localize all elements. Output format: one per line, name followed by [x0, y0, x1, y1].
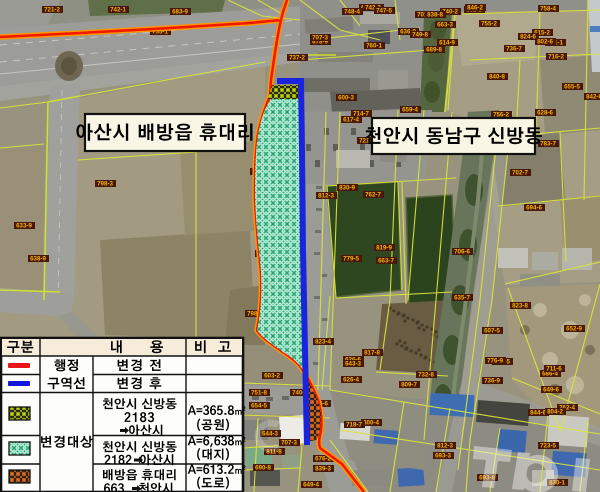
svg-text:707-3: 707-3 [281, 440, 297, 447]
svg-text:716-2: 716-2 [548, 54, 564, 61]
svg-text:694-6: 694-6 [526, 205, 542, 212]
svg-text:633-9: 633-9 [16, 223, 32, 230]
svg-text:758-4: 758-4 [540, 6, 556, 13]
svg-text:817-8: 817-8 [364, 350, 380, 357]
svg-text:655-5: 655-5 [564, 84, 580, 91]
svg-text:800-4: 800-4 [363, 420, 379, 427]
svg-text:804-2: 804-2 [547, 409, 563, 416]
svg-text:644-3: 644-3 [262, 431, 278, 438]
svg-text:659-4: 659-4 [402, 107, 418, 114]
svg-text:812-3: 812-3 [437, 443, 453, 450]
svg-text:663-3: 663-3 [437, 22, 453, 29]
svg-text:755-2: 755-2 [481, 21, 497, 28]
svg-text:809-7: 809-7 [401, 382, 417, 389]
svg-text:783-7: 783-7 [540, 141, 556, 148]
svg-text:603-2: 603-2 [264, 373, 280, 380]
svg-text:824-6: 824-6 [520, 34, 536, 41]
svg-text:842-6: 842-6 [586, 94, 600, 101]
svg-text:748-4: 748-4 [344, 9, 360, 16]
svg-text:683-9: 683-9 [172, 9, 188, 16]
svg-text:635-7: 635-7 [454, 295, 470, 302]
svg-text:649-4: 649-4 [303, 482, 319, 489]
svg-text:823-8: 823-8 [512, 303, 528, 310]
svg-text:600-3: 600-3 [338, 95, 354, 102]
svg-text:840-8: 840-8 [489, 74, 505, 81]
svg-text:802-6: 802-6 [537, 39, 553, 46]
svg-text:638-9: 638-9 [30, 256, 46, 263]
svg-text:819-9: 819-9 [376, 245, 392, 252]
svg-text:812-3: 812-3 [318, 193, 334, 200]
svg-text:706-6: 706-6 [454, 249, 470, 256]
svg-text:652-9: 652-9 [566, 326, 582, 333]
svg-text:723-5: 723-5 [540, 443, 556, 450]
svg-text:747-5: 747-5 [376, 8, 392, 15]
svg-text:654-5: 654-5 [251, 403, 267, 410]
svg-text:844-6: 844-6 [530, 410, 546, 417]
svg-text:628-6: 628-6 [537, 110, 553, 117]
svg-text:839-3: 839-3 [315, 466, 331, 473]
svg-text:614-9: 614-9 [439, 40, 455, 47]
svg-text:736-9: 736-9 [484, 378, 500, 385]
svg-text:776-9: 776-9 [487, 358, 503, 365]
svg-text:617-4: 617-4 [343, 117, 359, 124]
svg-text:711-6: 711-6 [546, 366, 562, 373]
svg-text:779-5: 779-5 [343, 256, 359, 263]
svg-text:830-9: 830-9 [339, 185, 355, 192]
svg-text:707-3: 707-3 [312, 35, 328, 42]
svg-text:798-3: 798-3 [97, 181, 113, 188]
svg-text:737-2: 737-2 [289, 55, 305, 62]
svg-text:718-7: 718-7 [346, 422, 362, 429]
svg-text:693-3: 693-3 [435, 453, 451, 460]
svg-text:732-8: 732-8 [418, 372, 434, 379]
svg-text:643-3: 643-3 [345, 361, 361, 368]
svg-text:649-6: 649-6 [543, 387, 559, 394]
svg-text:663-7: 663-7 [378, 258, 394, 265]
svg-text:762-7: 762-7 [365, 192, 381, 199]
svg-text:742-1: 742-1 [110, 7, 126, 14]
svg-text:760-1: 760-1 [366, 43, 382, 50]
svg-text:702-7: 702-7 [512, 170, 528, 177]
svg-text:838-8: 838-8 [427, 12, 443, 19]
svg-text:736-7: 736-7 [506, 46, 522, 53]
svg-text:607-5: 607-5 [484, 328, 500, 335]
svg-text:721-2: 721-2 [44, 7, 60, 14]
svg-text:823-4: 823-4 [315, 339, 331, 346]
svg-text:749-8: 749-8 [412, 32, 428, 39]
svg-text:689-8: 689-8 [426, 47, 442, 54]
svg-text:690-8: 690-8 [255, 465, 271, 472]
svg-text:846-2: 846-2 [467, 5, 483, 12]
svg-text:626-4: 626-4 [343, 377, 359, 384]
svg-text:751-8: 751-8 [251, 390, 267, 397]
